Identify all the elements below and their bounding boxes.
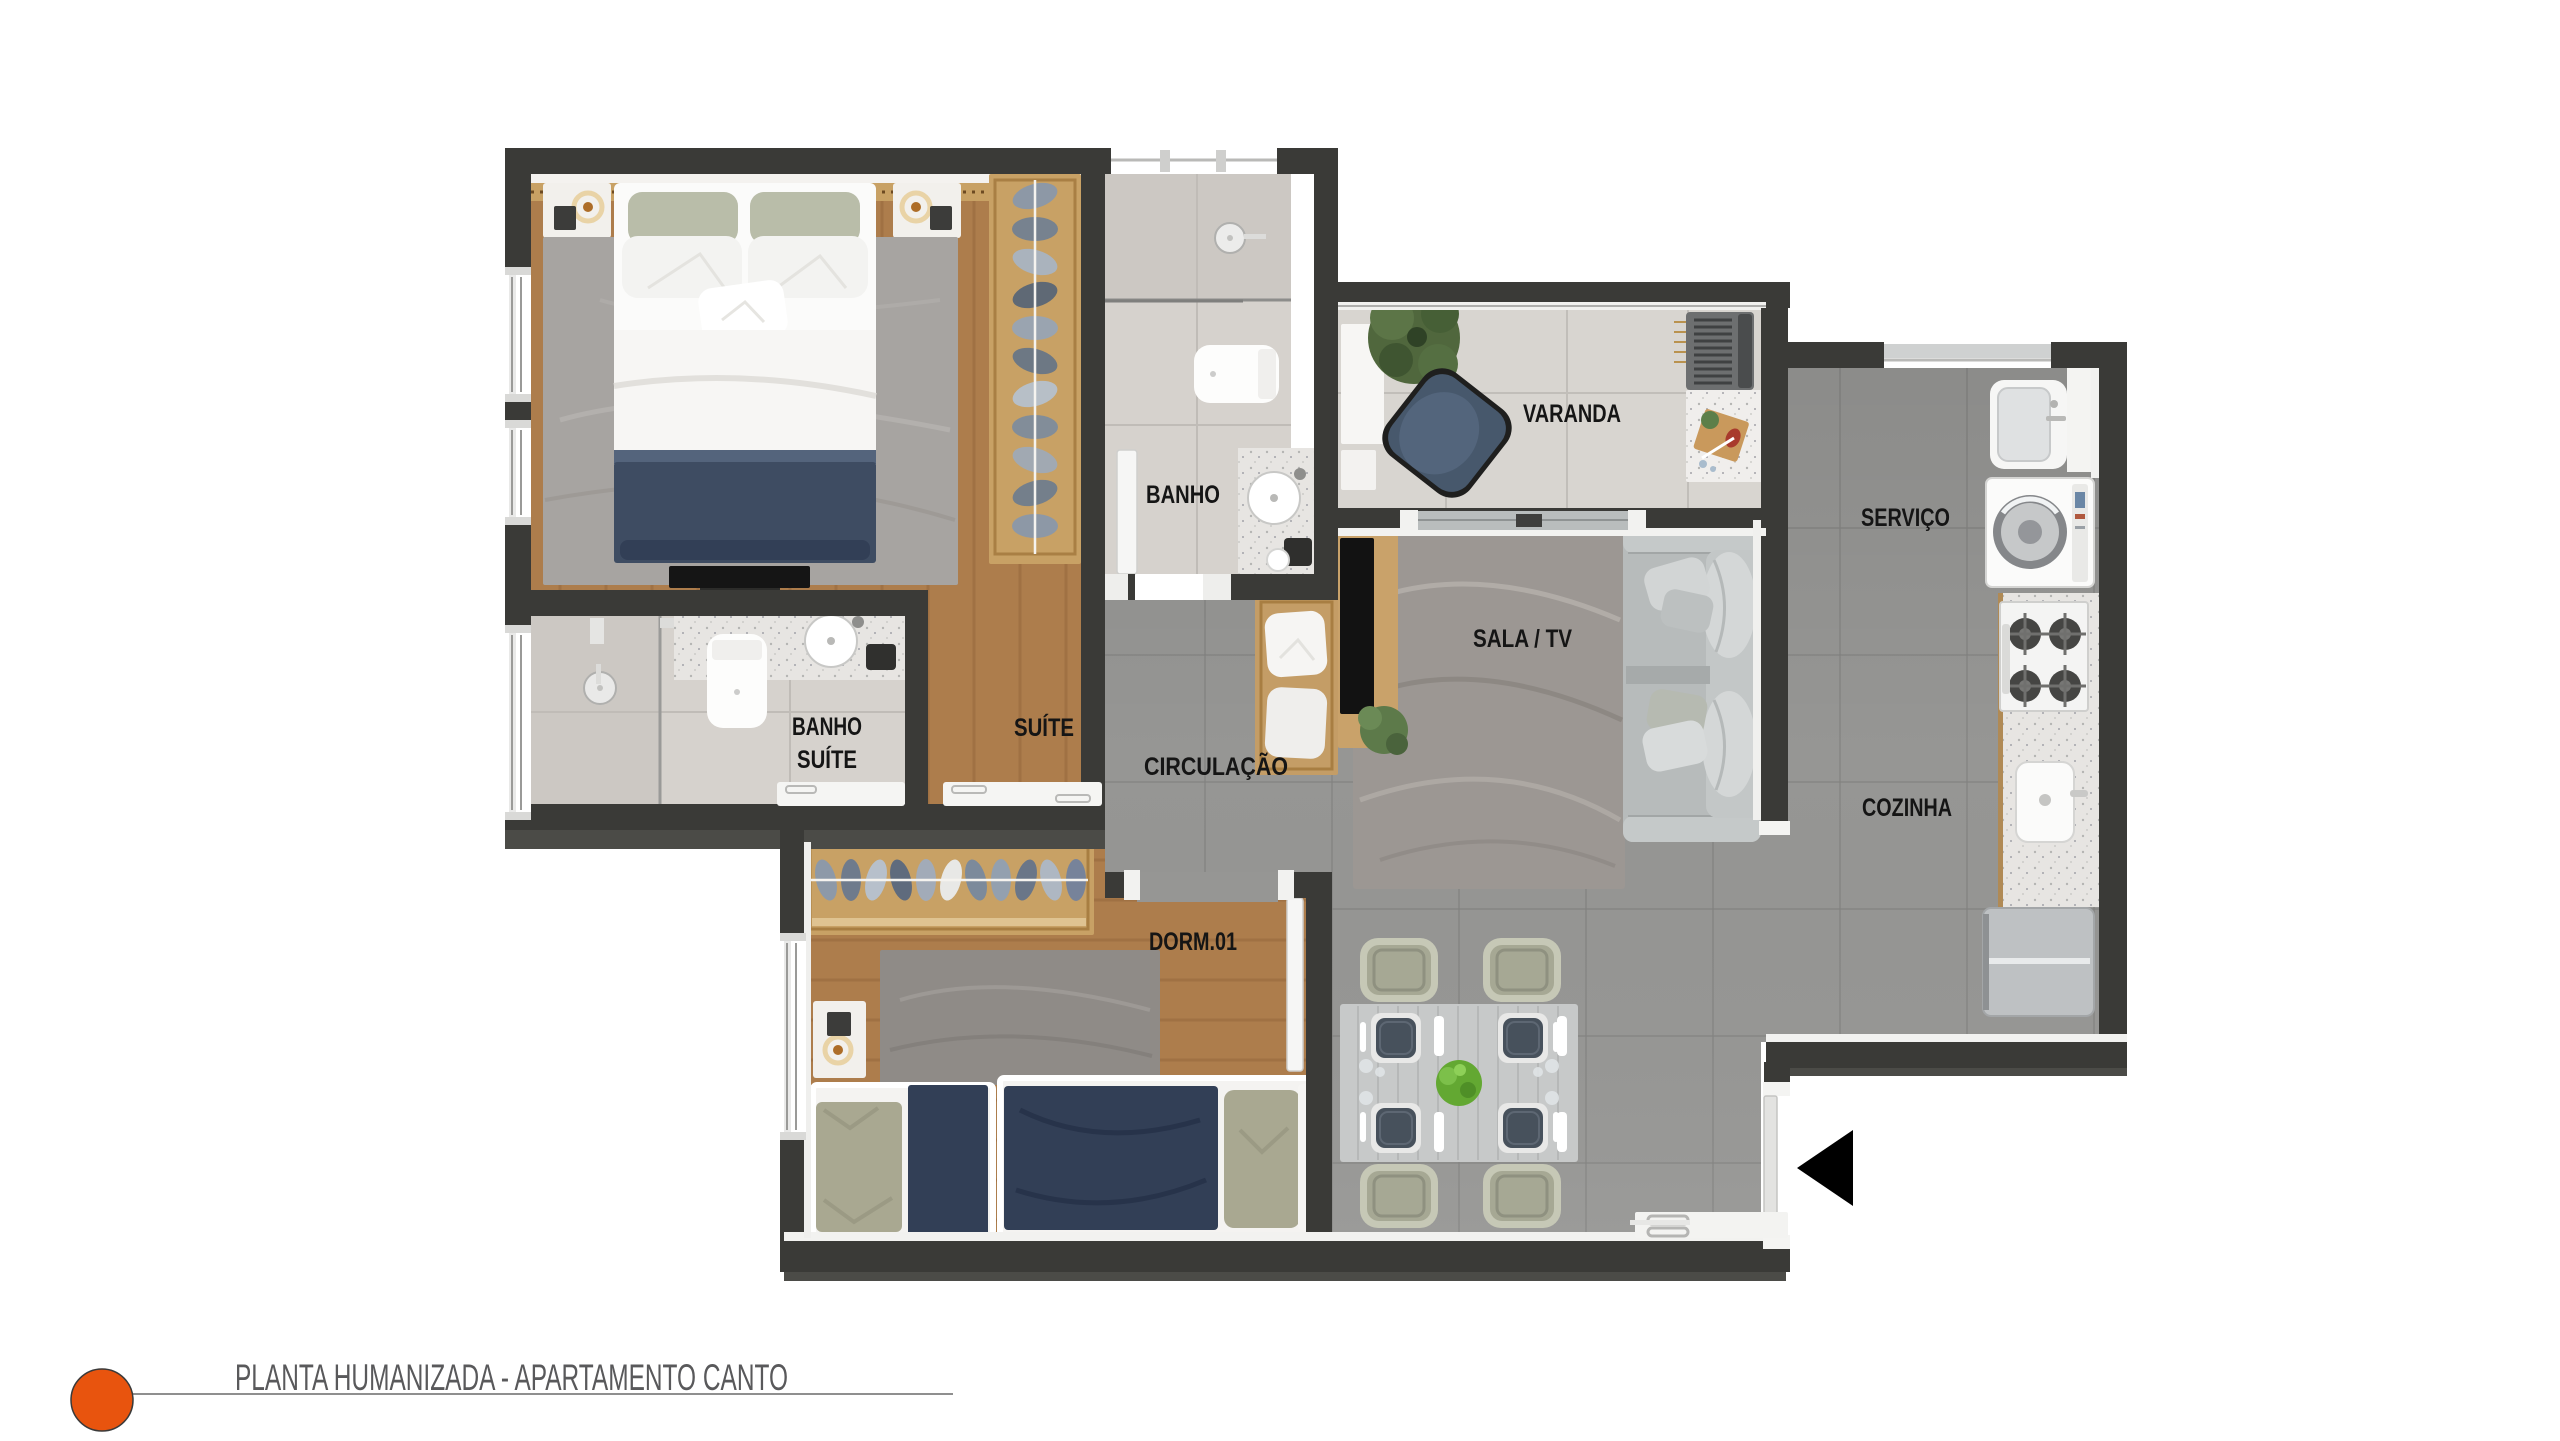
svg-text:SUÍTE: SUÍTE [1014, 713, 1074, 742]
svg-text:PLANTA HUMANIZADA - APARTAMENT: PLANTA HUMANIZADA - APARTAMENTO CANTO [235, 1357, 788, 1398]
svg-text:SALA / TV: SALA / TV [1473, 625, 1572, 653]
svg-text:BANHO: BANHO [792, 713, 862, 741]
svg-text:CIRCULAÇÃO: CIRCULAÇÃO [1144, 751, 1288, 781]
svg-text:SUÍTE: SUÍTE [797, 745, 857, 774]
svg-text:COZINHA: COZINHA [1862, 794, 1952, 822]
svg-text:BANHO: BANHO [1146, 481, 1220, 509]
svg-text:DORM.01: DORM.01 [1149, 928, 1237, 956]
svg-text:SERVIÇO: SERVIÇO [1861, 504, 1950, 532]
svg-text:VARANDA: VARANDA [1523, 400, 1621, 428]
